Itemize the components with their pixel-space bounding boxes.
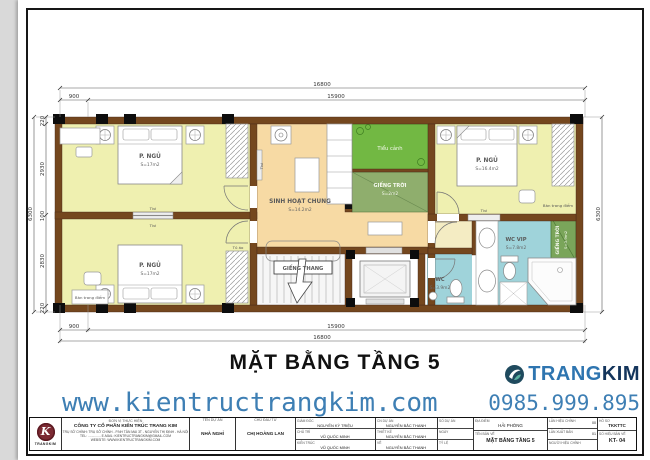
investor-label: CHỦ ĐẦU TƯ	[236, 418, 295, 423]
project-cell: TÊN DỰ ÁN NHÀ NGHỈ	[190, 418, 236, 450]
wardrobe2	[226, 251, 248, 303]
wardrobe-label: Tủ áo	[232, 245, 244, 250]
scanned-drawing-page: 16800 900 15900 900 15900 16800 220 2930…	[0, 0, 650, 460]
room-label-bedroom3: P. NGỦ	[476, 156, 498, 164]
nightstand	[519, 126, 537, 144]
wardrobe3	[552, 124, 574, 186]
project-label: TÊN DỰ ÁN	[190, 418, 235, 423]
room-area-skylight-right: S=3.9m2	[563, 230, 568, 249]
room-label-stairwell: GIẾNG THANG	[283, 264, 324, 272]
staff-cell-1: GIÁM ĐỐC NGUYỄN KỲ TRIỆU CHỦ TRÌ VŨ QUỐC…	[296, 418, 376, 450]
nightstand	[186, 126, 204, 144]
tv-label: Tivi	[149, 206, 157, 211]
shelf-cabinet	[327, 124, 352, 204]
tv-slab	[133, 216, 173, 219]
room-label-bedroom2: P. NGỦ	[139, 261, 161, 269]
revision-cell: LẦN HIỆU CHỈNH 00 LẦN XUẤT BẢN 01 NGƯỜI …	[548, 418, 598, 450]
design-value: NGUYỄN BẮC THANH	[376, 434, 436, 439]
titleblock-logo-cell: K TRANGKIM	[30, 418, 62, 450]
wardrobe1	[226, 124, 248, 178]
floor-plan-drawing: 16800 900 15900 900 15900 16800 220 2930…	[0, 0, 650, 385]
brand-logo: TRANGKIM	[470, 363, 640, 386]
room-area-bedroom3: S=16.4m2	[475, 166, 499, 172]
room-label-living: SINH HOẠT CHUNG	[269, 199, 331, 205]
basin	[479, 270, 496, 292]
revision-value: 00	[548, 421, 596, 425]
nightstand	[437, 126, 455, 144]
sheet-number-value: KT- 04	[598, 438, 636, 444]
dim-left-seg: 2930	[40, 162, 46, 176]
dim-left-total: 6300	[28, 207, 34, 221]
room-label-skylight-mid: GIẾNG TRỜI	[374, 181, 407, 189]
tv-slab	[468, 215, 500, 221]
titleblock-logo-caption: TRANGKIM	[35, 442, 56, 446]
projno-label: SỐ DỰ ÁN	[439, 419, 455, 423]
room-label-bedroom1: P. NGỦ	[139, 152, 161, 160]
tv-label: Tivi	[149, 223, 157, 228]
room-area-wc-vip: S=7.8m2	[506, 245, 527, 251]
project-value: NHÀ NGHỈ	[190, 431, 235, 436]
room-label-garden: Tiểu cảnh	[376, 145, 402, 152]
dim-top-left: 900	[69, 94, 80, 100]
drawing-name-label: TÊN BẢN VẼ	[475, 432, 495, 436]
tv-label: Tivi	[259, 163, 264, 171]
drawing-name-value: MẶT BẰNG TẦNG 5	[474, 438, 547, 444]
investor-value: CHỊ HOÀNG LAN	[236, 431, 295, 436]
draw-value: NGUYỄN BẮC THANH	[376, 445, 436, 450]
brand-name-part2: KIM	[602, 363, 640, 385]
toilet	[504, 263, 516, 280]
dim-bottom-total: 16800	[313, 335, 331, 341]
dim-right-total: 6300	[596, 207, 602, 221]
staff-cell-2: CN DỰ ÁN NGUYỄN BẮC THANH THIẾT KẾ NGUYỄ…	[376, 418, 438, 450]
dim-top-main: 15900	[327, 94, 345, 100]
trangkim-seal-icon: K	[37, 423, 55, 441]
basin	[479, 228, 495, 248]
room-area-wc: S=3.9m2	[430, 285, 451, 291]
dressing-table-label: Bàn trang điểm	[75, 295, 105, 300]
dressing-table-label: Bàn trang điểm	[543, 203, 573, 208]
company-website: WEBSITE: WWW.KIENTRUCTRANGKIM.COM	[62, 438, 189, 442]
table	[295, 158, 319, 192]
location-drawing-cell: ĐỊA ĐIỂM HẢI PHÒNG TÊN BẢN VẼ MẶT BẰNG T…	[474, 418, 548, 450]
numbers-cell: SỐ DỰ ÁN NGÀY TỶ LỆ	[438, 418, 474, 450]
dim-bottom-left: 900	[69, 324, 80, 330]
date-label: NGÀY	[439, 430, 448, 434]
sheet-number-label: SỐ HIỆU BẢN VẼ	[599, 432, 626, 436]
tv-slab	[133, 212, 173, 215]
room-area-skylight-mid: S=2m2	[382, 191, 399, 197]
room-area-bedroom2: S=17m2	[140, 271, 159, 277]
room-area-living: S=14.2m2	[288, 207, 312, 213]
room-area-bedroom1: S=17m2	[140, 162, 159, 168]
dim-left-seg: 2830	[40, 254, 46, 268]
dim-bottom-main: 15900	[327, 324, 345, 330]
wc-sink	[429, 292, 437, 300]
brand-name-part1: TRANG	[528, 363, 602, 385]
toilet	[450, 280, 462, 297]
brand-circle-icon	[505, 365, 524, 384]
location-value: HẢI PHÒNG	[474, 423, 547, 428]
edition-value: 01	[548, 432, 596, 436]
phone-number: 0985.999.895	[460, 391, 640, 415]
pm-value: NGUYỄN BẮC THANH	[376, 423, 436, 428]
lead-value: VŨ QUỐC MINH	[296, 434, 374, 439]
nightstand	[186, 285, 204, 303]
document-number-cell: HỒ SƠ TKKTTC SỐ HIỆU BẢN VẼ KT- 04	[598, 418, 636, 450]
tv-label: Tivi	[480, 208, 488, 213]
director-value: NGUYỄN KỲ TRIỆU	[296, 423, 374, 428]
investor-cell: CHỦ ĐẦU TƯ CHỊ HOÀNG LAN	[236, 418, 296, 450]
company-name: CÔNG TY CỔ PHẦN KIẾN TRÚC TRANG KIM	[62, 424, 189, 430]
title-block: K TRANGKIM ĐƠN VỊ THỰC HIỆN CÔNG TY CỔ P…	[29, 417, 637, 451]
dim-top-total: 16800	[313, 82, 331, 88]
room-label-wc-vip: WC VIP	[505, 237, 526, 243]
dim-left-seg: 220	[40, 115, 46, 126]
room-label-wc: WC	[435, 277, 445, 283]
doc-value: TKKTTC	[598, 423, 636, 428]
dim-left-seg: 100	[40, 210, 46, 221]
website-text: www.kientructrangkim.com	[62, 388, 438, 418]
architect-value: VŨ QUỐC MINH	[296, 445, 374, 450]
editor-label: NGƯỜI HIỆU CHỈNH	[549, 441, 581, 445]
titleblock-company-cell: ĐƠN VỊ THỰC HIỆN CÔNG TY CỔ PHẦN KIẾN TR…	[62, 418, 190, 450]
dim-left-seg: 220	[40, 302, 46, 313]
scale-label: TỶ LỆ	[439, 441, 448, 445]
